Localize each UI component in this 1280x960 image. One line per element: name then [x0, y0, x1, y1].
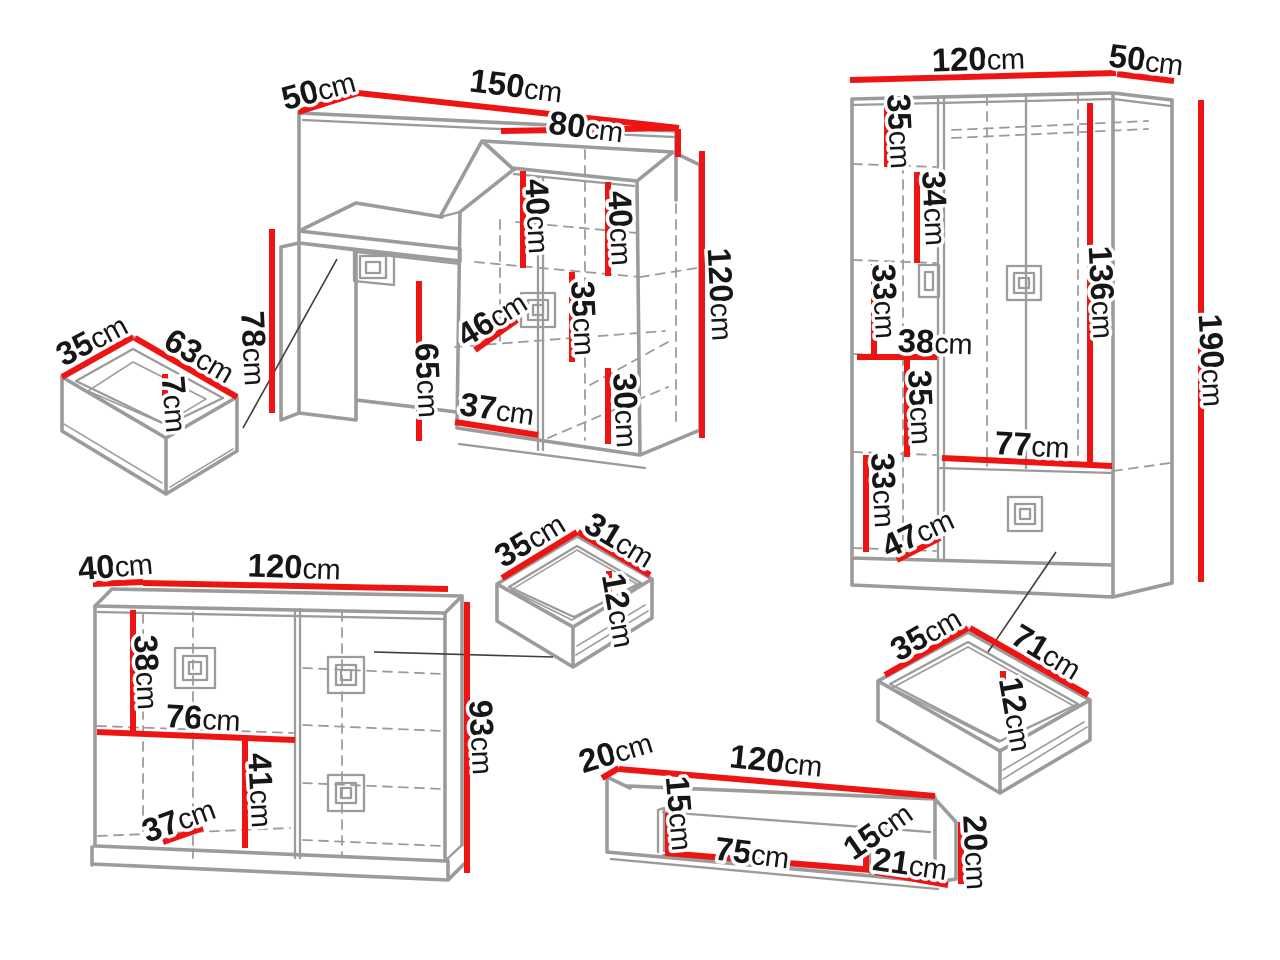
dim-label-wardrobe-33cm: 33cm [864, 452, 905, 528]
dim-label-dressing-table-30cm: 30cm [606, 372, 647, 448]
dim-label-dressing-table-35cm: 35cm [564, 280, 605, 356]
dim-label-wall-shelf-21cm: 21cm [871, 840, 950, 887]
dim-label-dressing-table-120cm: 120cm [701, 247, 743, 342]
dim-label-chest-of-drawers-76cm: 76cm [165, 697, 241, 738]
dim-label-chest-of-drawers-38cm: 38cm [127, 634, 168, 710]
dim-label-wardrobe-190cm: 190cm [1192, 313, 1234, 408]
dim-label-chest-of-drawers-41cm: 41cm [241, 752, 282, 828]
dim-label-dressing-table-40cm: 40cm [601, 190, 642, 266]
leader-lines [243, 259, 1056, 657]
dim-label-chest-of-drawers-37cm: 37cm [137, 789, 220, 849]
dim-label-wardrobe-35cm: 35cm [901, 369, 942, 445]
dim-label-dressing-table-78cm: 78cm [234, 310, 275, 386]
dim-label-wall-shelf-15cm: 15cm [659, 774, 702, 851]
dim-label-wardrobe-34cm: 34cm [915, 170, 956, 246]
dim-label-chest-of-drawers-40cm: 40cm [76, 544, 153, 587]
dim-label-chest-of-drawers-120cm: 120cm [247, 546, 341, 586]
dim-label-wardrobe-35cm: 35cm [880, 93, 921, 169]
dim-label-drawer-right-35cm: 35cm [884, 599, 967, 668]
dim-label-dressing-table-40cm: 40cm [518, 178, 559, 254]
dim-label-dressing-table-150cm: 150cm [468, 61, 565, 109]
dim-label-wardrobe-136cm: 136cm [1082, 245, 1124, 340]
dim-label-wall-shelf-20cm: 20cm [956, 814, 997, 890]
dim-label-chest-of-drawers-93cm: 93cm [462, 699, 503, 775]
furniture-dimensions-diagram: 50cm150cm80cm40cm40cm120cm78cm65cm46cm35… [0, 0, 1280, 960]
dim-label-dressing-table-80cm: 80cm [547, 104, 625, 150]
dim-label-wardrobe-77cm: 77cm [994, 424, 1070, 465]
dim-label-wardrobe-120cm: 120cm [931, 38, 1025, 78]
dim-label-drawer-middle-31cm: 31cm [578, 504, 661, 574]
dim-label-drawer-left-7cm: 7cm [155, 375, 197, 434]
dim-label-wardrobe-38cm: 38cm [897, 322, 973, 362]
dim-label-dressing-table-65cm: 65cm [408, 342, 449, 418]
diagram-canvas: 50cm150cm80cm40cm40cm120cm78cm65cm46cm35… [0, 0, 1280, 960]
